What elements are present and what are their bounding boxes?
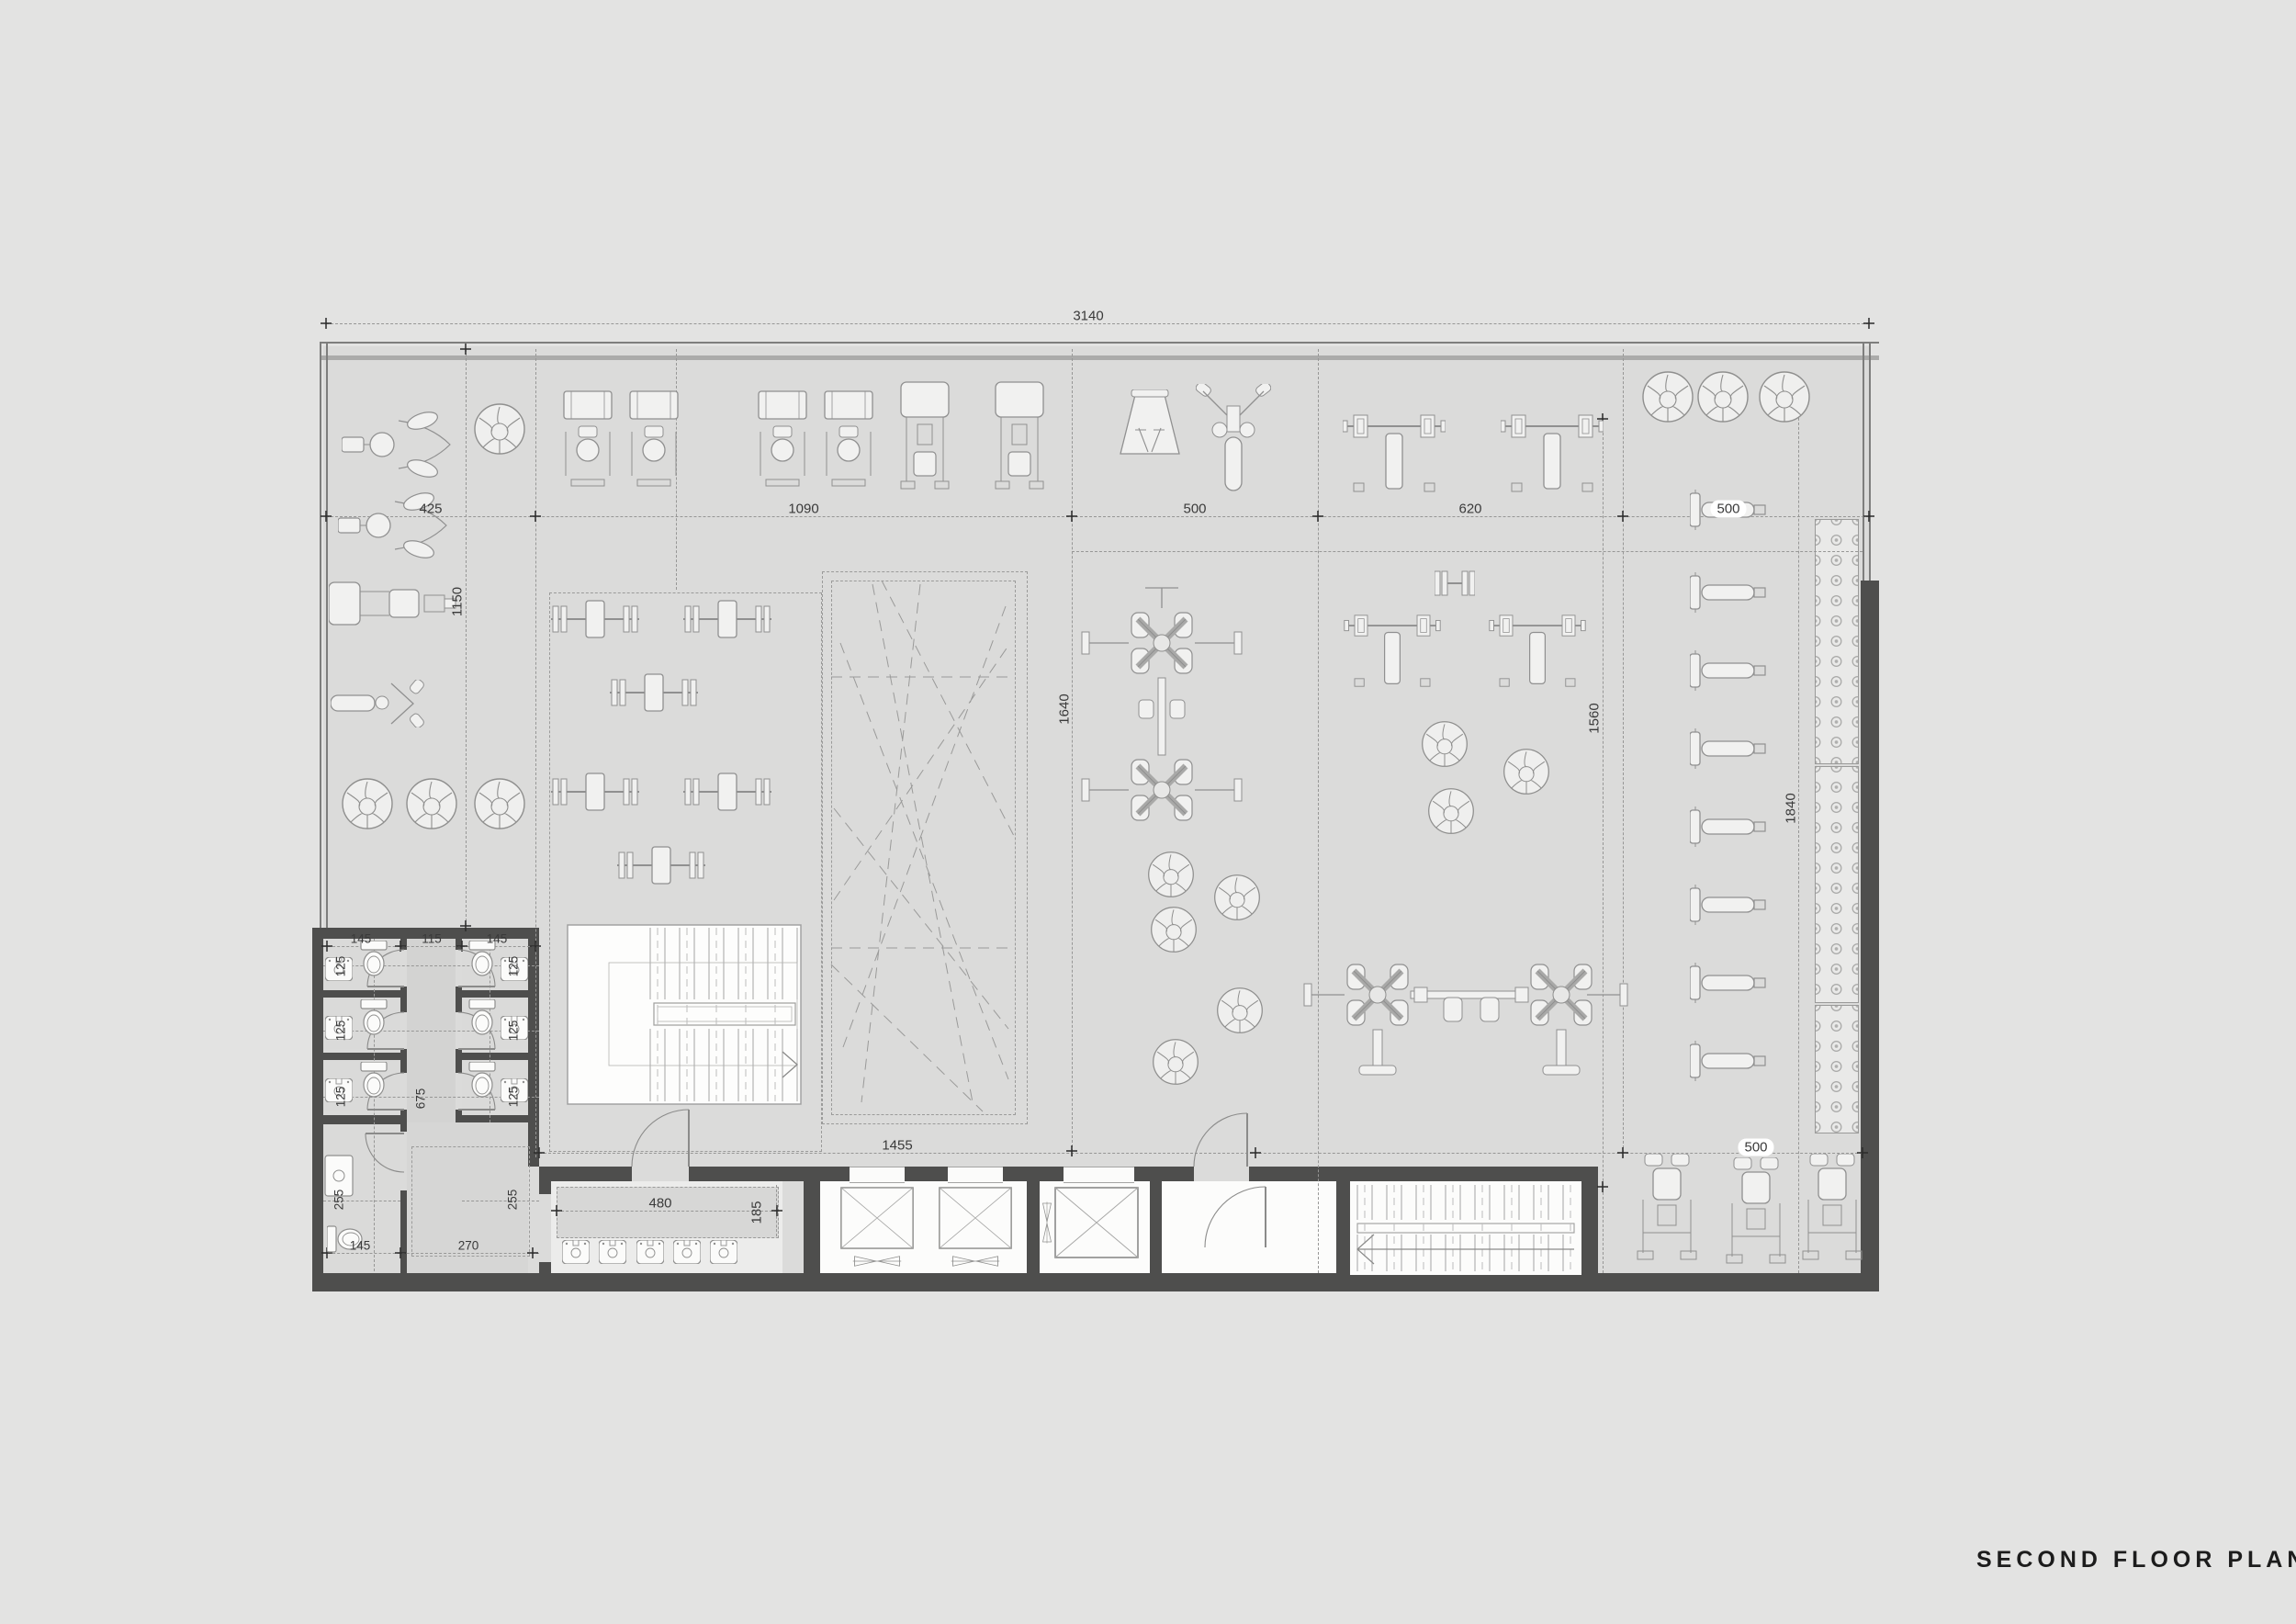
pec-deck-icon xyxy=(342,409,450,480)
weight-machine-icon xyxy=(759,391,806,486)
dip-station-icon xyxy=(1120,389,1179,454)
exercise-ball-icon xyxy=(475,779,524,829)
dim-label-145: 145 xyxy=(487,932,508,946)
toilet-icon xyxy=(361,941,387,976)
exercise-ball-icon xyxy=(1215,875,1260,920)
flat-bench-icon xyxy=(683,773,771,810)
bench-press-rack-icon xyxy=(1343,415,1446,491)
hack-squat-icon xyxy=(1638,1154,1696,1259)
exercise-ball-icon xyxy=(1504,750,1549,795)
dim-label-1090: 1090 xyxy=(788,502,818,517)
adjustable-bench-icon xyxy=(1690,806,1765,847)
exercise-ball-icon xyxy=(1149,852,1194,897)
dim-label-185: 185 xyxy=(749,1201,765,1224)
adjustable-bench-icon xyxy=(1690,885,1765,925)
bench-press-rack-icon xyxy=(1345,615,1440,686)
exercise-ball-icon xyxy=(1218,988,1263,1033)
bench-press-rack-icon xyxy=(1501,415,1604,491)
t-bar-row-icon xyxy=(331,678,425,729)
sheet-title: SECOND FLOOR PLAN xyxy=(1976,1547,2296,1573)
dim-label-500-right: 500 xyxy=(1710,502,1746,517)
flat-bench-icon xyxy=(551,773,639,810)
dim-label-255: 255 xyxy=(332,1190,346,1211)
adjustable-bench-icon xyxy=(1690,728,1765,769)
elevator-car-icon xyxy=(940,1188,1011,1248)
flat-bench-icon xyxy=(683,601,771,637)
flat-bench-icon xyxy=(551,601,639,637)
dim-label-115: 115 xyxy=(422,932,442,946)
adjustable-bench-icon xyxy=(1690,963,1765,1003)
feature-stair xyxy=(568,925,801,1104)
elevators xyxy=(841,1188,1138,1266)
dim-label-145: 145 xyxy=(351,932,372,946)
leg-press-icon xyxy=(329,582,456,625)
dim-label-620: 620 xyxy=(1458,502,1481,517)
exercise-ball-icon xyxy=(1643,372,1693,422)
dim-label-1640: 1640 xyxy=(1057,694,1073,724)
hack-squat-icon xyxy=(1727,1157,1785,1263)
elevator-counterweight-icon xyxy=(853,1257,902,1267)
t-bar-row-icon xyxy=(1195,380,1273,491)
vanity-sinks xyxy=(562,1240,737,1264)
toilet-icon xyxy=(361,1062,387,1097)
dim-label-125: 125 xyxy=(507,956,521,977)
dumbbell-icon xyxy=(1435,571,1475,595)
toilet-icon xyxy=(469,941,495,976)
cable-crossover-icon xyxy=(1304,964,1627,1075)
mat-diagonal-lines xyxy=(831,581,1014,1111)
dim-label-1150: 1150 xyxy=(450,587,466,616)
cable-crossover-icon xyxy=(1082,588,1242,820)
exercise-ball-icon xyxy=(1429,789,1474,834)
weight-machine-icon xyxy=(825,391,872,486)
dim-label-125: 125 xyxy=(334,956,348,977)
dim-label-125: 125 xyxy=(507,1021,521,1042)
dim-label-500: 500 xyxy=(1183,502,1206,517)
dim-label-480: 480 xyxy=(648,1196,671,1212)
exercise-ball-icon xyxy=(343,779,392,829)
adjustable-bench-icon xyxy=(1690,650,1765,691)
gym-equipment xyxy=(329,372,1862,1263)
dim-label-1840: 1840 xyxy=(1784,793,1799,823)
exercise-ball-icon xyxy=(1698,372,1748,422)
adjustable-bench-icon xyxy=(1690,572,1765,613)
leg-press-sled-icon xyxy=(901,382,949,489)
toilet-icon xyxy=(361,999,387,1034)
floor-plan-sheet: 3140 425 1090 500 620 500 1150 1640 1560… xyxy=(0,0,2296,1624)
stairwell-treads xyxy=(1357,1185,1574,1271)
exercise-ball-icon xyxy=(407,779,456,829)
plan-linework xyxy=(0,0,2296,1624)
elevator-car-icon xyxy=(841,1188,913,1248)
dim-label-145: 145 xyxy=(350,1239,371,1253)
exercise-ball-icon xyxy=(1760,372,1809,422)
adjustable-bench-icon xyxy=(1690,1041,1765,1081)
dim-label-125: 125 xyxy=(507,1087,521,1108)
exercise-ball-icon xyxy=(475,404,524,454)
dim-label-125: 125 xyxy=(334,1087,348,1108)
toilet-icon xyxy=(469,999,495,1034)
weight-machine-icon xyxy=(630,391,678,486)
exercise-ball-icon xyxy=(1423,722,1468,767)
bench-press-rack-icon xyxy=(1490,615,1585,686)
dim-label-1560: 1560 xyxy=(1587,703,1603,733)
flat-bench-icon xyxy=(617,847,705,884)
dim-label-270: 270 xyxy=(458,1239,479,1253)
exercise-ball-icon xyxy=(1152,908,1197,953)
toilet-icon xyxy=(469,1062,495,1097)
dim-label-overall: 3140 xyxy=(1073,309,1103,324)
elevator-car-icon xyxy=(1055,1188,1138,1257)
weight-machine-icon xyxy=(564,391,612,486)
leg-press-sled-icon xyxy=(996,382,1043,489)
dim-label-1455: 1455 xyxy=(882,1138,912,1154)
dim-label-425: 425 xyxy=(419,502,442,517)
dim-label-125: 125 xyxy=(334,1021,348,1042)
elevator-counterweight-icon xyxy=(1043,1202,1052,1244)
dim-label-675: 675 xyxy=(414,1088,428,1110)
elevator-counterweight-icon xyxy=(951,1257,1000,1267)
hack-squat-icon xyxy=(1803,1154,1862,1259)
dim-label-500-bottom: 500 xyxy=(1738,1140,1773,1156)
dim-label-255: 255 xyxy=(506,1190,520,1211)
exercise-ball-icon xyxy=(1154,1040,1199,1085)
flat-bench-icon xyxy=(610,674,698,711)
